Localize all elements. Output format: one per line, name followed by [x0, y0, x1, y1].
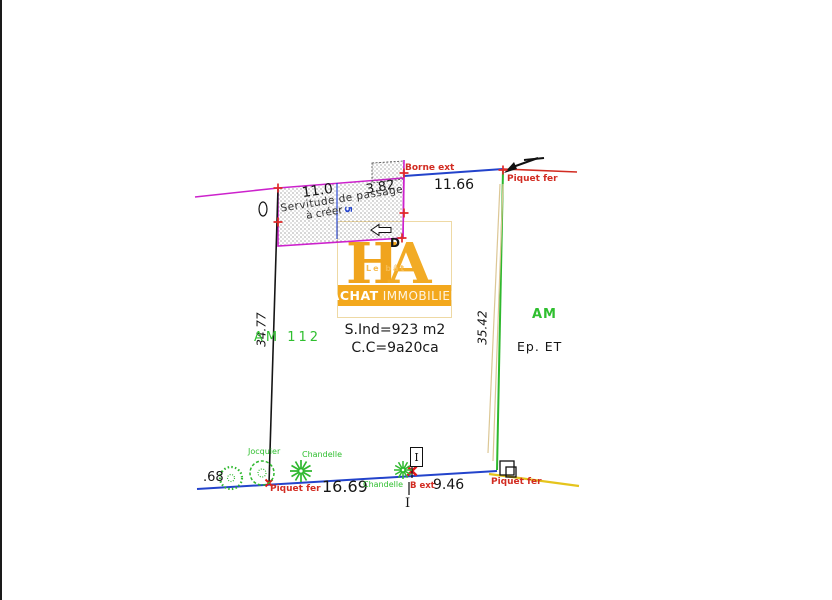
section-am-right: AM — [532, 308, 557, 322]
post-ellipse-symbol — [259, 202, 267, 216]
area-text-block: S.Ind=923 m2 C.C=9a20ca — [330, 321, 460, 357]
label-b-ext: B ext — [410, 482, 435, 491]
dim-9-46: 9.46 — [433, 478, 464, 493]
dim-11-66: 11.66 — [434, 178, 474, 193]
label-ep-et: Ep. ET — [517, 340, 562, 354]
dim-cut-68: .68 — [203, 471, 224, 485]
logo-banner-word2: IMMOBILIER — [383, 289, 460, 303]
label-piquet-fer-top: Piquet fer — [507, 175, 558, 185]
logo-banner: ACHAT IMMOBILIER — [338, 285, 451, 306]
logo-banner-word1: ACHAT — [330, 288, 379, 303]
label-chandelle-2: Chandelle — [363, 481, 403, 490]
tree-circle-symbol-2 — [250, 461, 274, 485]
borne-i-box-letter: I — [414, 451, 418, 464]
borne-i-box-symbol: I — [410, 447, 423, 467]
area-contenance: C.C=9a20ca — [330, 339, 460, 357]
area-surface: S.Ind=923 m2 — [330, 321, 460, 339]
label-d: D — [390, 237, 400, 250]
right-green-boundary — [497, 170, 503, 470]
label-borne-ext: Borne ext — [405, 164, 454, 174]
survey-plan-page: H A Le bât ACHAT IMMOBILIER — [0, 0, 832, 600]
chandelle-star-symbol-1 — [290, 460, 312, 482]
parcel-number-left: AM 112 — [254, 331, 321, 345]
arrow-mark — [504, 158, 544, 173]
marker-i-below: I — [405, 497, 410, 511]
label-piquet-fer-bottom-right: Piquet fer — [491, 478, 542, 488]
label-piquet-fer-bottom-left: Piquet fer — [270, 485, 321, 495]
servitude-blue-mark: 5 — [342, 206, 353, 213]
borne-double-square-symbol — [500, 461, 516, 477]
dim-35-42: 35.42 — [477, 310, 490, 344]
label-chandelle-1: Chandelle — [302, 451, 342, 460]
top-red-boundary — [503, 169, 577, 172]
label-jocquier: Jocquier — [248, 448, 280, 457]
hedge-tan-strip — [488, 184, 503, 461]
page-left-border — [0, 0, 2, 600]
logo-tagline: Le bât — [366, 264, 406, 273]
dim-16-69: 16.69 — [322, 478, 368, 496]
